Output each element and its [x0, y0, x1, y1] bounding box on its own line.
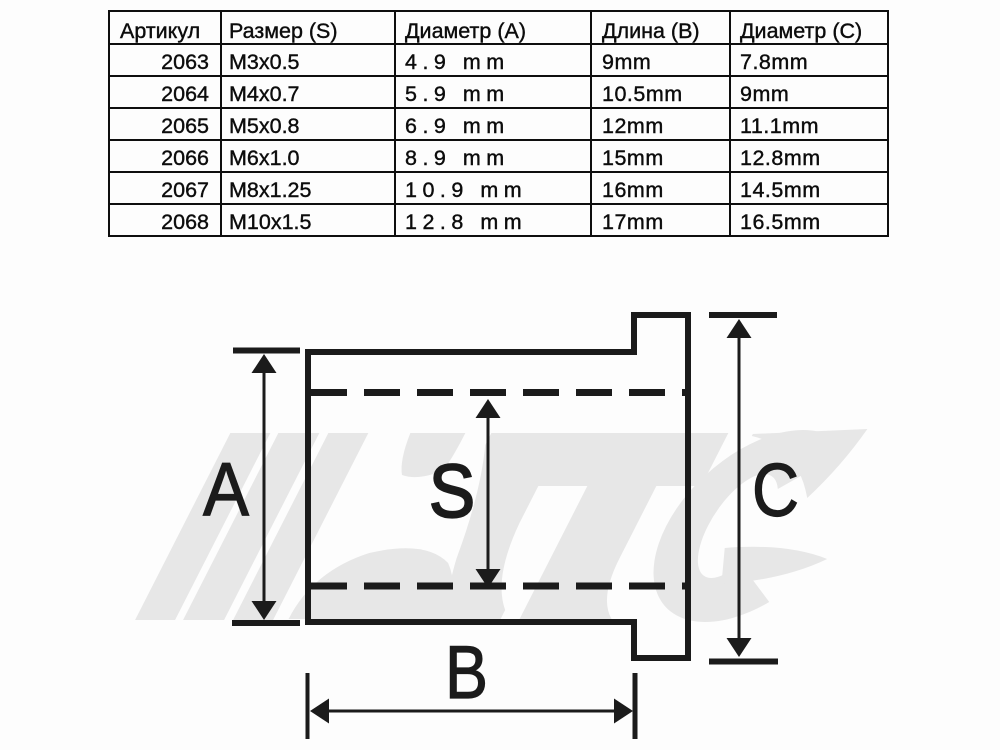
svg-text:C: C [752, 448, 799, 532]
svg-text:S: S [429, 449, 475, 533]
svg-text:B: B [445, 630, 488, 714]
svg-text:A: A [203, 447, 249, 531]
